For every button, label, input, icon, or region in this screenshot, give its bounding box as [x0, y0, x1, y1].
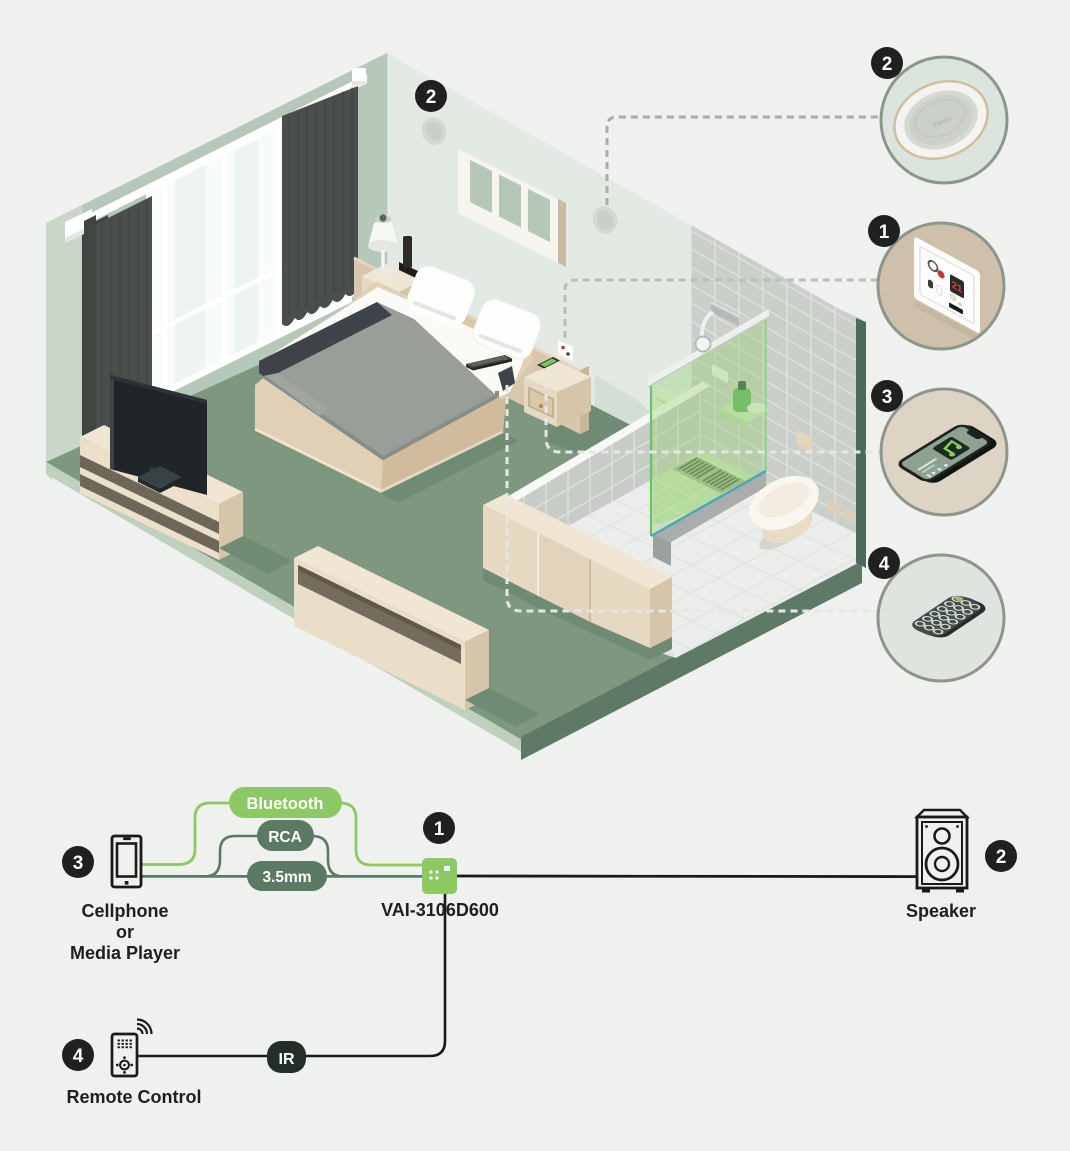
svg-text:RCA: RCA	[268, 829, 302, 846]
svg-text:Remote Control: Remote Control	[67, 1087, 202, 1107]
svg-text:Bluetooth: Bluetooth	[247, 795, 324, 813]
svg-text:4: 4	[73, 1046, 84, 1067]
svg-text:4: 4	[879, 554, 890, 575]
svg-text:2: 2	[996, 847, 1007, 868]
svg-text:Media Player: Media Player	[70, 943, 180, 963]
svg-text:3: 3	[73, 853, 84, 874]
svg-text:IR: IR	[279, 1051, 295, 1068]
svg-text:or: or	[116, 922, 134, 942]
svg-text:Cellphone: Cellphone	[81, 901, 168, 921]
svg-text:1: 1	[879, 222, 890, 243]
svg-text:Speaker: Speaker	[906, 901, 976, 921]
svg-text:1: 1	[434, 819, 445, 840]
svg-text:VAI-3106D600: VAI-3106D600	[381, 900, 499, 920]
svg-text:3: 3	[882, 387, 893, 408]
svg-text:3.5mm: 3.5mm	[262, 869, 311, 886]
svg-text:2: 2	[426, 87, 437, 108]
svg-text:2: 2	[882, 54, 893, 75]
